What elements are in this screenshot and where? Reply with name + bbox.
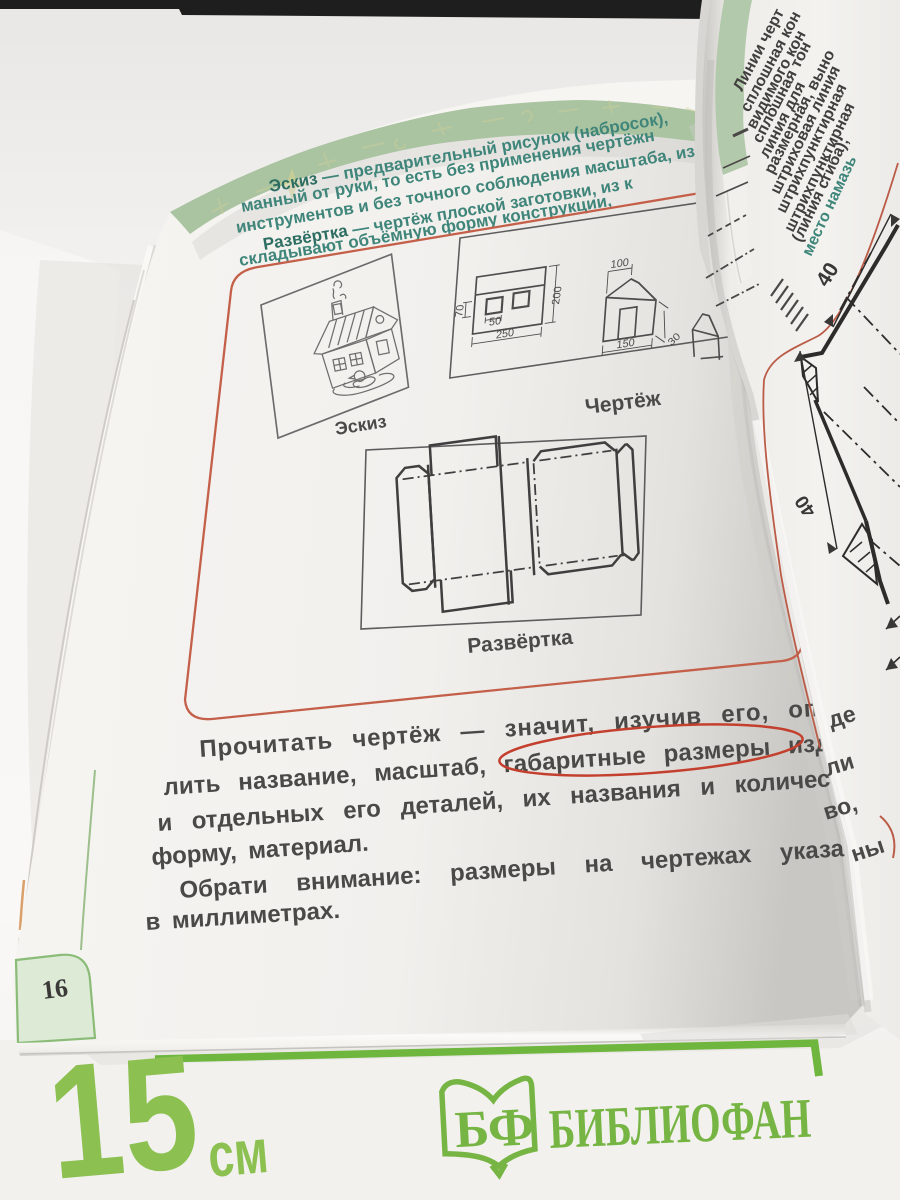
svg-text:Ф: Ф: [486, 1096, 535, 1158]
svg-text:БИБЛИОФАН: БИБЛИОФАН: [548, 1088, 812, 1161]
svg-text:см: см: [205, 1117, 271, 1191]
svg-text:Б: Б: [453, 1100, 490, 1159]
svg-text:15: 15: [41, 1021, 204, 1200]
svg-text:70: 70: [453, 304, 467, 317]
svg-text:16: 16: [40, 973, 69, 1005]
svg-text:50: 50: [489, 315, 502, 329]
